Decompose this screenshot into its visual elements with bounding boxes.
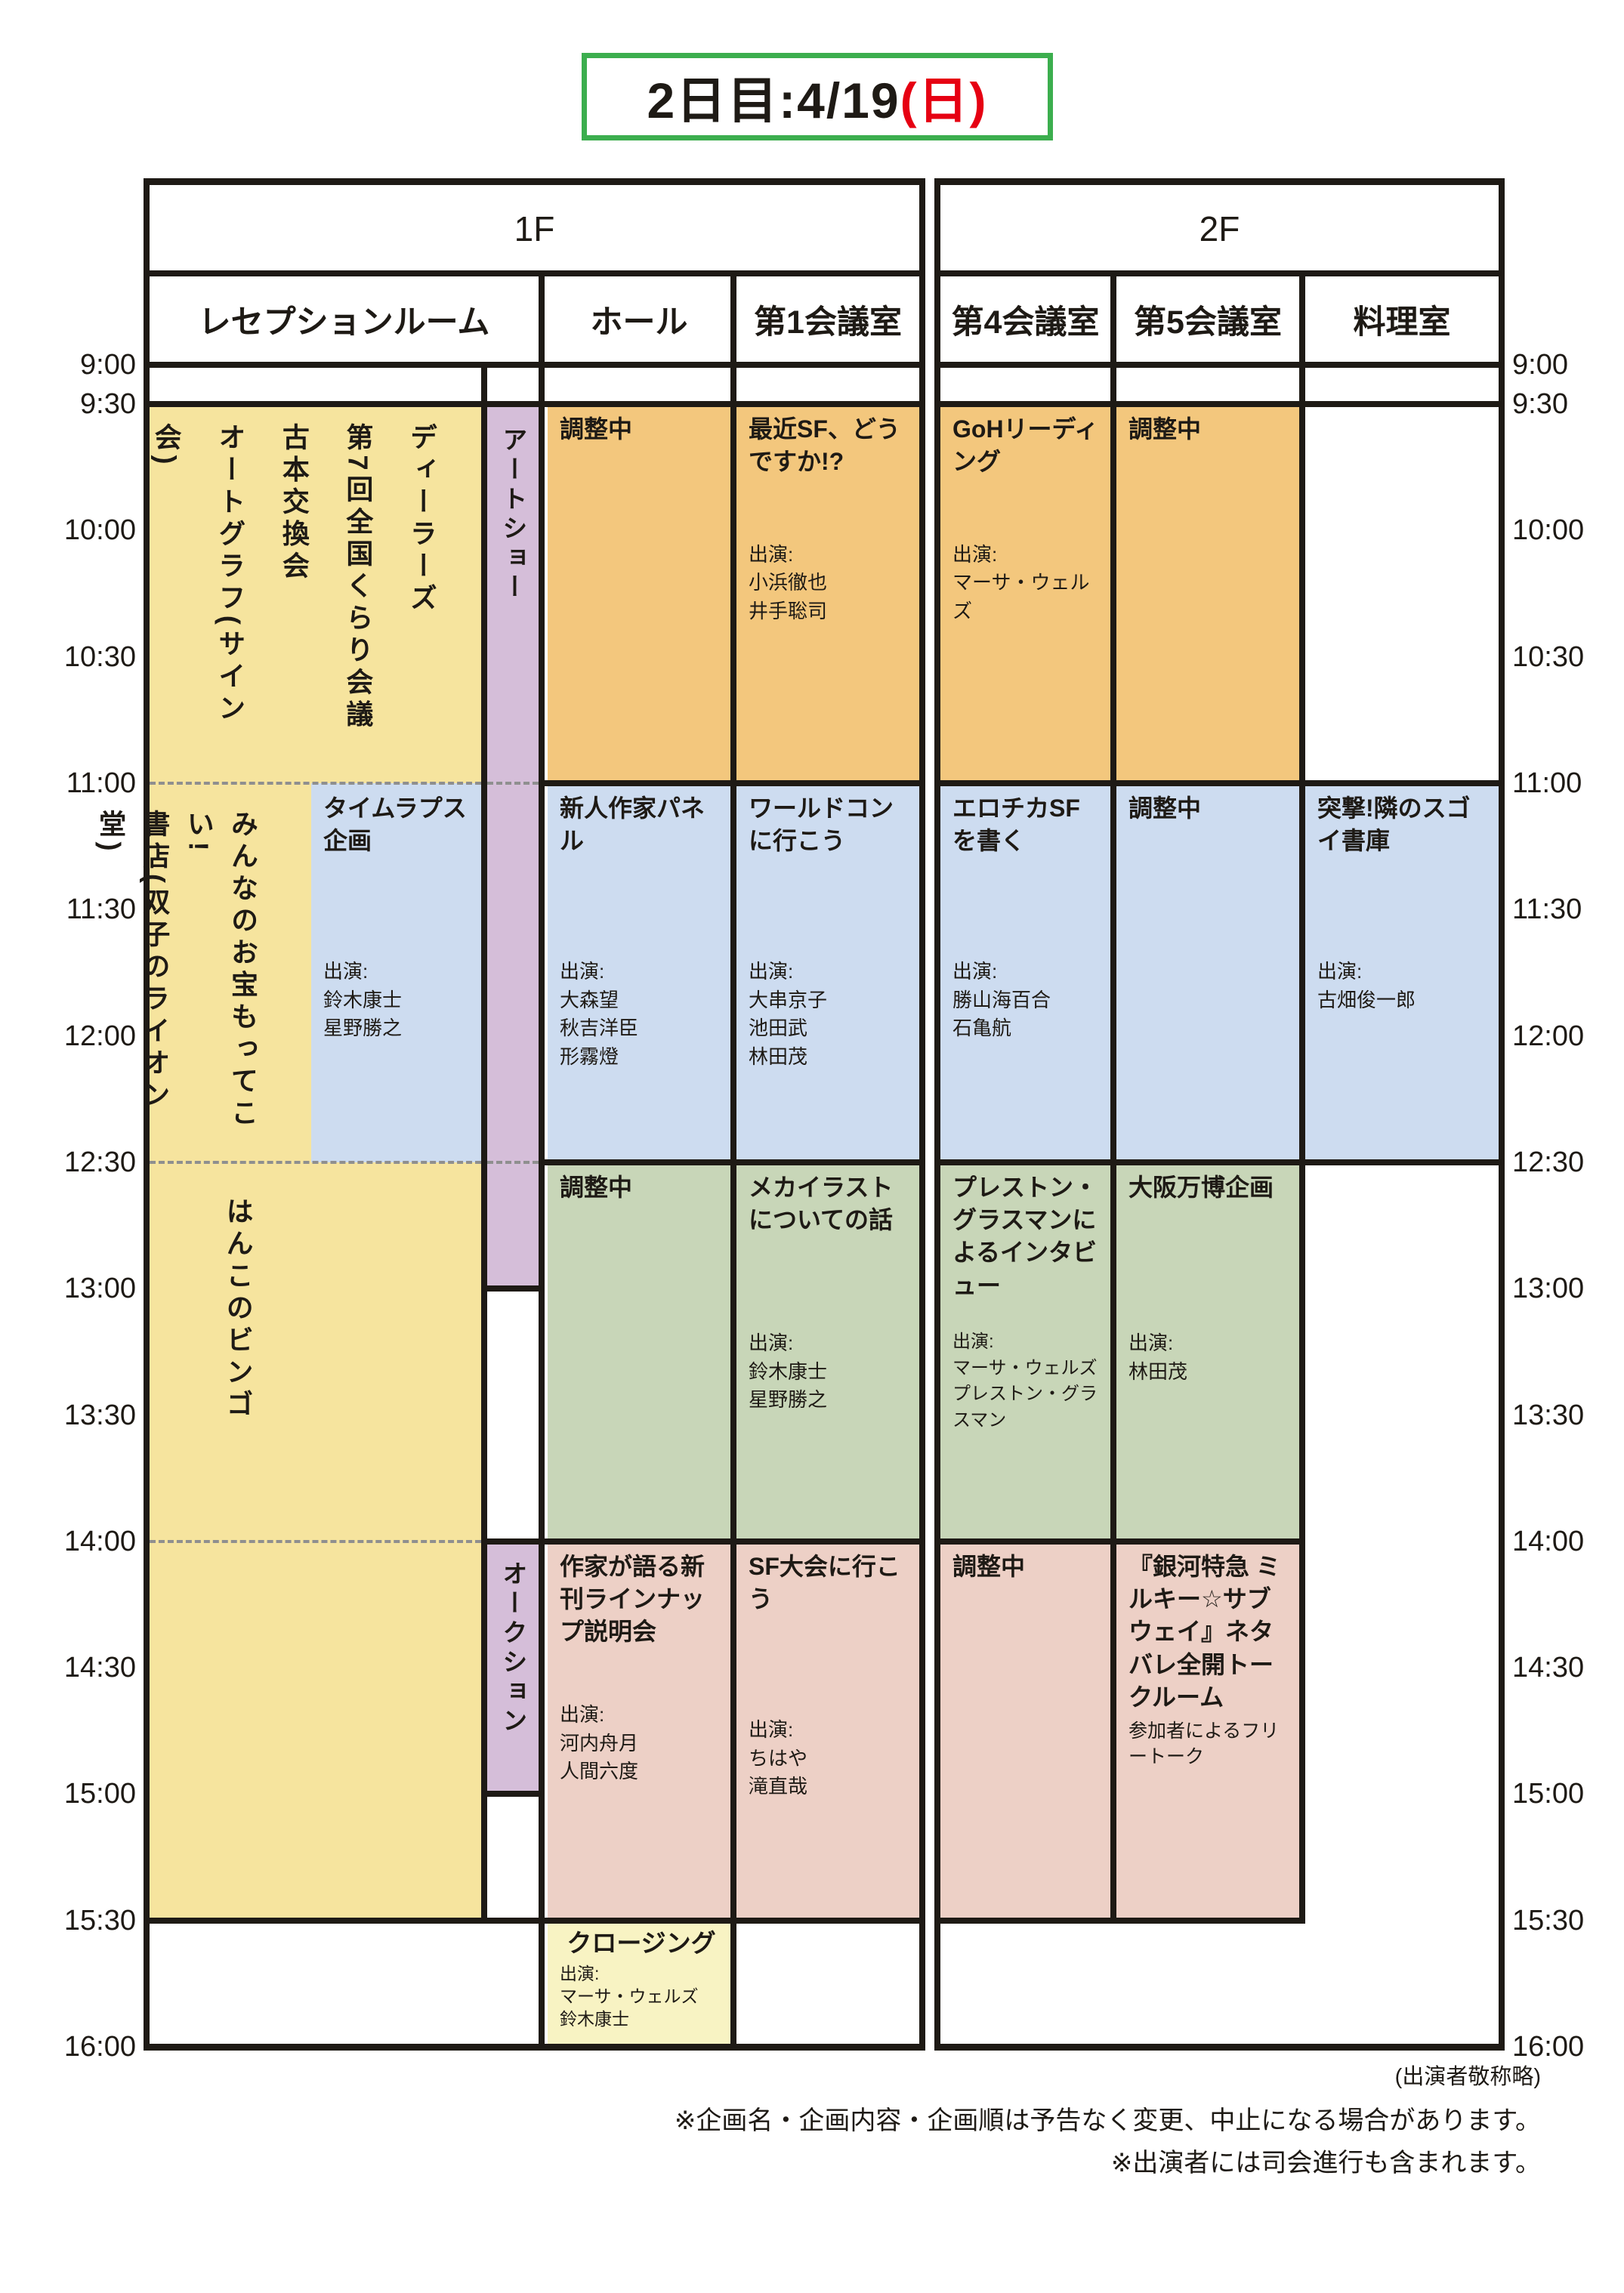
cast-label: 出演: (952, 1329, 1104, 1356)
event-title: メカイラストについての話 (749, 1171, 912, 1236)
event-cast: 出演: 大森望 秋吉洋臣 形霧燈 (560, 958, 724, 1072)
event-hall-1530-closing: クロージング 出演: マーサ・ウェルズ 鈴木康士 (548, 1921, 730, 2047)
event-room5-1100: 調整中 (1116, 783, 1299, 1162)
event-hall-1100: 新人作家パネル 出演: 大森望 秋吉洋臣 形霧燈 (548, 783, 730, 1162)
event-subtitle: 参加者によるフリートーク (1128, 1719, 1292, 1770)
event-cast: 出演: 林田茂 (1128, 1329, 1293, 1386)
grid-line (919, 178, 925, 2051)
dashed-line (150, 1161, 481, 1164)
time-label: 13:00 (23, 1269, 136, 1308)
time-label: 14:00 (23, 1522, 136, 1561)
room-label: レセプションルーム (199, 296, 490, 343)
event-hall-0930: 調整中 (548, 404, 730, 783)
event-cast: 出演: マーサ・ウェルズ プレストン・グラスマン (952, 1329, 1104, 1434)
event-title: 作家が語る新刊ラインナップ説明会 (560, 1551, 723, 1649)
grid-line (934, 270, 1505, 276)
grid-line (934, 362, 1505, 368)
dashed-line (150, 782, 481, 785)
event-cast: 出演: 大串京子 池田武 林田茂 (749, 958, 913, 1072)
floor-header-2f: 2F (940, 187, 1499, 270)
event-title: 調整中 (952, 1551, 1103, 1583)
cast-label: 出演: (560, 1963, 724, 1986)
cast-label: 出演: (749, 1329, 913, 1358)
cast-names: 河内舟月 人間六度 (560, 1730, 724, 1786)
grid-line (1499, 178, 1505, 2051)
room-header-room4: 第4会議室 (940, 276, 1110, 362)
footer-note-mc: ※出演者には司会進行も含まれます。 (1111, 2142, 1541, 2179)
event-room5-1230: 大阪万博企画 出演: 林田茂 (1116, 1162, 1299, 1542)
event-hall-1400: 作家が語る新刊ラインナップ説明会 出演: 河内舟月 人間六度 (548, 1542, 730, 1921)
event-title: プレストン・グラスマンによるインタビュー (952, 1171, 1103, 1302)
cast-names: マーサ・ウェルズ プレストン・グラスマン (952, 1356, 1104, 1434)
cast-label: 出演: (560, 1701, 724, 1730)
event-title: はんこのビンゴ (221, 1197, 254, 1522)
room-header-room1: 第1会議室 (736, 276, 919, 362)
event-room4-1100: エロチカSFを書く 出演: 勝山海百合 石亀航 (940, 783, 1110, 1162)
event-cast: 出演: 河内舟月 人間六度 (560, 1701, 724, 1786)
page-title: 2日目:4/19(日) (582, 53, 1053, 140)
grid-line (481, 1285, 545, 1292)
footer-note-change: ※企画名・企画内容・企画順は予告なく変更、中止になる場合があります。 (675, 2100, 1541, 2137)
event-title: アートショー (498, 427, 528, 804)
grid-line (144, 1918, 925, 1924)
time-label: 12:30 (23, 1143, 136, 1182)
title-weekday: (日) (900, 60, 988, 133)
schedule-page: 2日目:4/19(日) ディーラーズ 第7回全国くらり会議 古本交換会 オートグ… (0, 0, 1624, 2293)
event-room4-0930: GoHリーディング 出演: マーサ・ウェルズ (940, 404, 1110, 783)
event-room4-1230: プレストン・グラスマンによるインタビュー 出演: マーサ・ウェルズ プレストン・… (940, 1162, 1110, 1542)
event-dealers: ディーラーズ 第7回全国くらり会議 古本交換会 オートグラフ(サイン会) (189, 423, 453, 770)
time-label: 13:00 (1512, 1269, 1624, 1308)
grid-line (730, 270, 736, 2051)
event-title: 新人作家パネル (560, 792, 723, 857)
event-room5-1400: 『銀河特急 ミルキー☆サブウェイ』ネタバレ全開トークルーム 参加者によるフリート… (1116, 1542, 1299, 1921)
room-label: 第4会議室 (952, 296, 1100, 343)
event-title: ワールドコンに行こう (749, 792, 912, 857)
event-cast: 出演: 鈴木康士 星野勝之 (749, 1329, 913, 1415)
floor-label: 1F (514, 208, 555, 249)
time-label: 15:30 (23, 1901, 136, 1940)
grid-line (481, 365, 487, 1924)
room-header-cooking: 料理室 (1305, 276, 1499, 362)
time-label: 11:00 (23, 764, 136, 803)
event-cast: 出演: 鈴木康士 星野勝之 (323, 958, 475, 1043)
grid-line (934, 1918, 1305, 1924)
event-cast: 出演: マーサ・ウェルズ 鈴木康士 (560, 1963, 724, 2031)
time-label: 11:30 (23, 890, 136, 929)
cast-label: 出演: (323, 958, 475, 986)
cast-names: ちはや 滝直哉 (749, 1745, 913, 1801)
event-title: 突撃!隣のスゴイ書庫 (1317, 792, 1491, 857)
event-cast: 出演: マーサ・ウェルズ (952, 541, 1104, 626)
room-label: ホール (591, 296, 688, 343)
room-header-room5: 第5会議室 (1116, 276, 1299, 362)
time-label: 14:30 (23, 1648, 136, 1687)
cast-label: 出演: (749, 958, 913, 986)
grid-line (1110, 270, 1116, 1924)
event-title: SF大会に行こう (749, 1551, 912, 1616)
time-label: 15:30 (1512, 1901, 1624, 1940)
grid-line (144, 270, 925, 276)
time-label: 9:00 (23, 345, 136, 384)
grid-line (934, 178, 940, 2051)
event-artshow-label: アートショー (487, 427, 539, 804)
room-label: 第5会議室 (1134, 296, 1282, 343)
grid-line (144, 178, 150, 2051)
event-title: 調整中 (560, 413, 723, 446)
event-title: クロージング (560, 1927, 723, 1961)
event-title: 大阪万博企画 (1128, 1171, 1292, 1204)
cast-label: 出演: (1128, 1329, 1293, 1358)
event-room5-0930: 調整中 (1116, 404, 1299, 783)
event-title: オークション (498, 1560, 528, 1787)
event-auction-label: オークション (487, 1560, 539, 1787)
time-label: 9:00 (1512, 345, 1624, 384)
time-label: 10:00 (23, 511, 136, 550)
event-room4-1400: 調整中 (940, 1542, 1110, 1921)
event-treasure: みんなのお宝もってこい! 書店(双子のライオン堂) (159, 810, 264, 1157)
event-room1-1400: SF大会に行こう 出演: ちはや 滝直哉 (736, 1542, 919, 1921)
cast-label: 出演: (749, 541, 913, 569)
dashed-line (487, 1161, 539, 1164)
grid-line (934, 780, 1505, 786)
time-label: 16:00 (23, 2027, 136, 2066)
event-title: GoHリーディング (952, 413, 1103, 478)
grid-line (144, 401, 925, 407)
time-label: 11:30 (1512, 890, 1624, 929)
time-label: 12:00 (1512, 1017, 1624, 1056)
cast-label: 出演: (560, 958, 724, 986)
grid-line (481, 1791, 545, 1797)
room-label: 料理室 (1354, 296, 1451, 343)
event-title: 最近SF、どうですか!? (749, 413, 912, 478)
time-label: 12:00 (23, 1017, 136, 1056)
time-label: 15:00 (1512, 1774, 1624, 1813)
floor-label: 2F (1199, 208, 1240, 249)
grid-line (934, 178, 1505, 185)
event-title: ディーラーズ 第7回全国くらり会議 古本交換会 オートグラフ(サイン会) (134, 423, 453, 770)
dashed-line (487, 782, 539, 785)
grid-line (1299, 270, 1305, 1924)
event-cast: 出演: 古畑俊一郎 (1317, 958, 1493, 1014)
grid-line (934, 2044, 1505, 2051)
time-label: 11:00 (1512, 764, 1624, 803)
cast-names: 古畑俊一郎 (1317, 986, 1493, 1015)
event-room1-1230: メカイラストについての話 出演: 鈴木康士 星野勝之 (736, 1162, 919, 1542)
event-title: みんなのお宝もってこい! 書店(双子のライオン堂) (88, 810, 264, 1157)
dashed-line (150, 1540, 481, 1543)
event-timelapse: タイムラプス企画 出演: 鈴木康士 星野勝之 (311, 783, 481, 1162)
grid-line (144, 2044, 925, 2051)
grid-line (144, 362, 925, 368)
footer-honorific: (出演者敬称略) (1395, 2059, 1541, 2091)
cast-names: 鈴木康士 星野勝之 (749, 1358, 913, 1415)
event-bingo: はんこのビンゴ (211, 1197, 264, 1522)
time-label: 13:30 (23, 1396, 136, 1435)
cast-names: 大串京子 池田武 林田茂 (749, 986, 913, 1072)
cast-names: マーサ・ウェルズ 鈴木康士 (560, 1986, 724, 2031)
cast-names: 大森望 秋吉洋臣 形霧燈 (560, 986, 724, 1072)
grid-line (934, 1538, 1305, 1545)
event-cast: 出演: 勝山海百合 石亀航 (952, 958, 1104, 1043)
time-label: 13:30 (1512, 1396, 1624, 1435)
event-room1-0930: 最近SF、どうですか!? 出演: 小浜徹也 井手聡司 (736, 404, 919, 783)
time-label: 12:30 (1512, 1143, 1624, 1182)
time-label: 14:30 (1512, 1648, 1624, 1687)
room-header-reception: レセプションルーム (150, 276, 539, 362)
grid-line (934, 401, 1505, 407)
event-cooking-1100: 突撃!隣のスゴイ書庫 出演: 古畑俊一郎 (1305, 783, 1499, 1162)
cast-names: 小浜徹也 井手聡司 (749, 569, 913, 625)
time-label: 10:30 (23, 637, 136, 677)
grid-line (539, 270, 545, 2051)
grid-line (934, 1159, 1505, 1165)
cast-names: 林田茂 (1128, 1358, 1293, 1387)
time-label: 10:30 (1512, 637, 1624, 677)
event-title: エロチカSFを書く (952, 792, 1103, 857)
cast-label: 出演: (1317, 958, 1493, 986)
time-label: 14:00 (1512, 1522, 1624, 1561)
event-title: 調整中 (560, 1171, 723, 1204)
cast-names: マーサ・ウェルズ (952, 569, 1104, 625)
title-day: 2日目:4/19 (647, 60, 900, 133)
event-title: 『銀河特急 ミルキー☆サブウェイ』ネタバレ全開トークルーム (1128, 1551, 1292, 1714)
room-header-hall: ホール (548, 276, 730, 362)
floor-header-1f: 1F (150, 187, 919, 270)
cast-names: 勝山海百合 石亀航 (952, 986, 1104, 1043)
grid-line (144, 178, 925, 185)
grid-line (481, 1538, 925, 1545)
time-label: 15:00 (23, 1774, 136, 1813)
cast-label: 出演: (952, 541, 1104, 569)
cast-label: 出演: (952, 958, 1104, 986)
time-label: 9:30 (23, 384, 136, 424)
cast-names: 鈴木康士 星野勝之 (323, 986, 475, 1043)
time-label: 10:00 (1512, 511, 1624, 550)
event-cast: 出演: ちはや 滝直哉 (749, 1716, 913, 1801)
event-title: 調整中 (1128, 792, 1292, 825)
time-label: 9:30 (1512, 384, 1624, 424)
event-hall-1230: 調整中 (548, 1162, 730, 1542)
event-room1-1100: ワールドコンに行こう 出演: 大串京子 池田武 林田茂 (736, 783, 919, 1162)
event-title: タイムラプス企画 (323, 792, 474, 857)
event-title: 調整中 (1128, 413, 1292, 446)
room-label: 第1会議室 (754, 296, 902, 343)
event-cast: 出演: 小浜徹也 井手聡司 (749, 541, 913, 626)
cast-label: 出演: (749, 1716, 913, 1745)
